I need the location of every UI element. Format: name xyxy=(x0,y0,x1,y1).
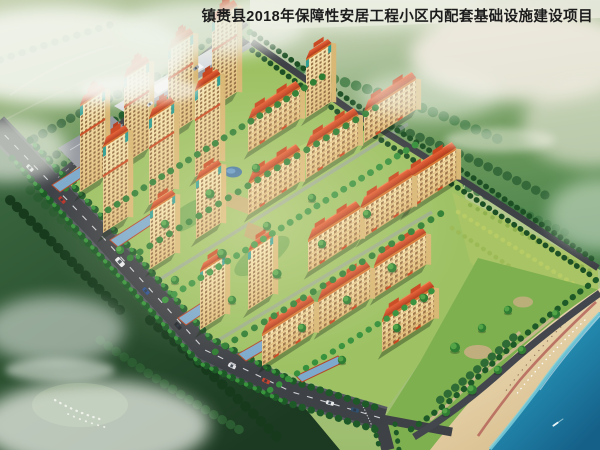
project-title: 镇赉县2018年保障性安居工程小区内配套基础设施建设项目 xyxy=(202,5,593,26)
rendering-image: 镇赉县2018年保障性安居工程小区内配套基础设施建设项目 xyxy=(0,0,600,450)
